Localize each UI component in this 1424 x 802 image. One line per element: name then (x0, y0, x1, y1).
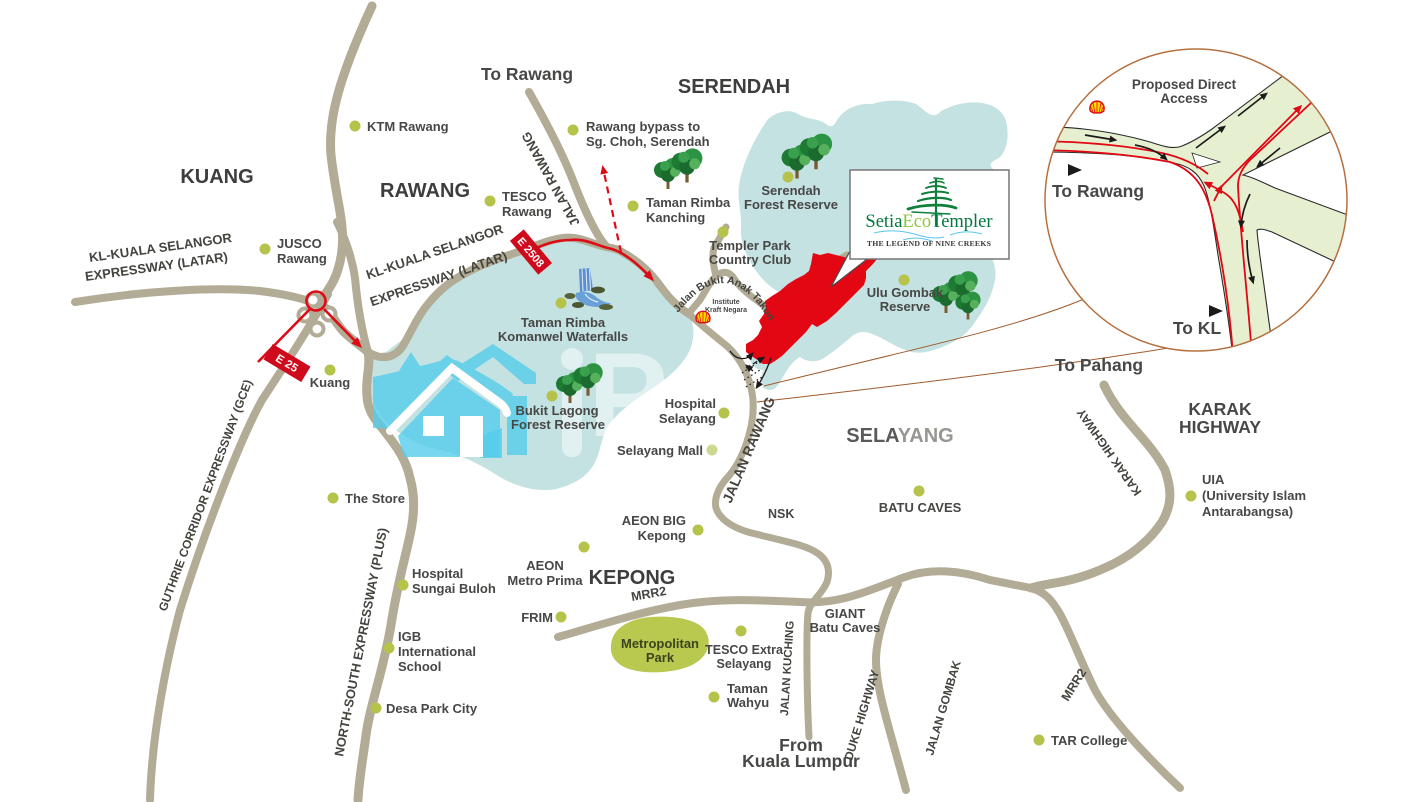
svg-text:Institute: Institute (712, 299, 739, 306)
svg-text:(University Islam: (University Islam (1202, 488, 1306, 503)
svg-text:To Pahang: To Pahang (1055, 355, 1143, 375)
svg-text:BATU CAVES: BATU CAVES (879, 500, 962, 515)
svg-text:Kuang: Kuang (310, 375, 351, 390)
svg-text:KTM Rawang: KTM Rawang (367, 119, 449, 134)
svg-text:Bukit Lagong: Bukit Lagong (515, 403, 598, 418)
svg-text:Ulu Gombak: Ulu Gombak (867, 285, 944, 300)
svg-text:AEON BIG: AEON BIG (622, 513, 686, 528)
svg-text:UIA: UIA (1202, 472, 1225, 487)
svg-text:Country Club: Country Club (709, 252, 791, 267)
svg-text:TESCO Extra: TESCO Extra (705, 643, 784, 657)
svg-text:Kepong: Kepong (638, 528, 686, 543)
svg-text:Komanwel Waterfalls: Komanwel Waterfalls (498, 329, 628, 344)
svg-text:Rawang bypass to: Rawang bypass to (586, 119, 700, 134)
svg-text:SELAYANG: SELAYANG (846, 425, 953, 447)
svg-text:IGB: IGB (398, 629, 421, 644)
svg-text:AEON: AEON (526, 558, 564, 573)
svg-text:P: P (588, 328, 668, 462)
svg-text:Taman Rimba: Taman Rimba (521, 315, 606, 330)
svg-text:Forest Reserve: Forest Reserve (511, 417, 605, 432)
svg-text:TAR College: TAR College (1051, 733, 1127, 748)
svg-text:International: International (398, 644, 476, 659)
svg-text:School: School (398, 659, 441, 674)
svg-text:Antarabangsa): Antarabangsa) (1202, 504, 1293, 519)
svg-text:Hospital: Hospital (412, 566, 463, 581)
svg-text:Metropolitan: Metropolitan (621, 636, 699, 651)
svg-text:Sungai Buloh: Sungai Buloh (412, 581, 496, 596)
svg-text:THE LEGEND OF NINE CREEKS: THE LEGEND OF NINE CREEKS (867, 239, 991, 248)
svg-text:RAWANG: RAWANG (380, 180, 470, 202)
svg-text:Reserve: Reserve (880, 299, 931, 314)
svg-text:Sg. Choh, Serendah: Sg. Choh, Serendah (586, 134, 710, 149)
svg-text:KARAK: KARAK (1188, 399, 1252, 419)
svg-text:TESCO: TESCO (502, 189, 547, 204)
svg-text:Hospital: Hospital (665, 396, 716, 411)
svg-text:Kanching: Kanching (646, 210, 705, 225)
svg-text:Rawang: Rawang (502, 204, 552, 219)
svg-text:GIANT: GIANT (825, 606, 866, 621)
svg-text:To Rawang: To Rawang (1052, 181, 1144, 201)
svg-text:JUSCO: JUSCO (277, 236, 322, 251)
svg-text:Metro Prima: Metro Prima (507, 573, 583, 588)
svg-text:Taman: Taman (727, 681, 768, 696)
svg-text:Park: Park (646, 650, 675, 665)
svg-text:SetiaEcoTempler: SetiaEcoTempler (865, 212, 992, 232)
svg-text:Templer Park: Templer Park (709, 238, 791, 253)
svg-text:Batu Caves: Batu Caves (810, 620, 881, 635)
svg-text:Rawang: Rawang (277, 251, 327, 266)
svg-text:Access: Access (1160, 91, 1207, 106)
svg-text:Selayang Mall: Selayang Mall (617, 443, 703, 458)
svg-text:Serendah: Serendah (761, 183, 820, 198)
svg-text:Desa Park City: Desa Park City (386, 701, 478, 716)
svg-text:To KL: To KL (1173, 318, 1222, 338)
svg-text:Selayang: Selayang (659, 411, 716, 426)
svg-text:SERENDAH: SERENDAH (678, 76, 790, 98)
svg-text:The Store: The Store (345, 491, 405, 506)
svg-text:KUANG: KUANG (180, 166, 253, 188)
svg-text:Selayang: Selayang (717, 657, 772, 671)
svg-text:Wahyu: Wahyu (727, 695, 769, 710)
svg-text:Proposed Direct: Proposed Direct (1132, 77, 1237, 92)
svg-text:To Rawang: To Rawang (481, 64, 573, 84)
svg-text:FRIM: FRIM (521, 610, 553, 625)
svg-text:HIGHWAY: HIGHWAY (1179, 417, 1261, 437)
svg-text:Forest Reserve: Forest Reserve (744, 197, 838, 212)
svg-text:Kraft Negara: Kraft Negara (705, 307, 747, 314)
svg-text:Taman Rimba: Taman Rimba (646, 195, 731, 210)
svg-text:NSK: NSK (768, 507, 794, 521)
